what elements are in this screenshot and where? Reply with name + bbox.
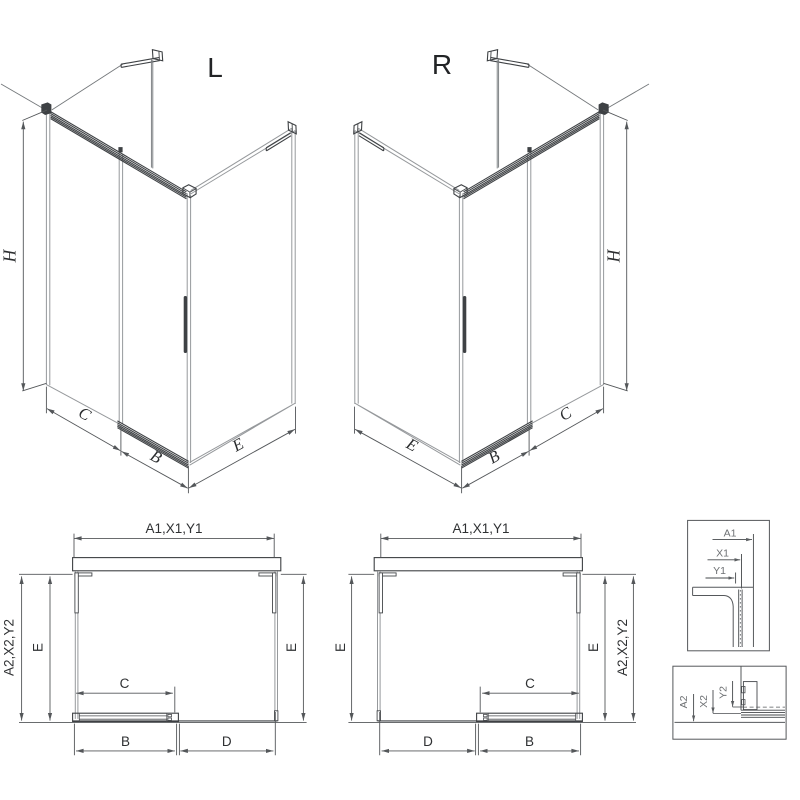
corner-glass-edge <box>187 193 190 463</box>
support-arm <box>52 64 123 110</box>
dim-label-top-width-r: A1,X1,Y1 <box>452 521 509 536</box>
iso-view-right-labels: R H E B C <box>402 49 623 467</box>
door-leading-edge <box>119 153 122 424</box>
side-glass-panels <box>75 571 277 719</box>
dim-label-fixed-r: D <box>423 734 433 749</box>
dim-label-side-r: E <box>402 433 421 455</box>
top-rail-track <box>51 112 187 199</box>
dim-label-height-r: H <box>604 248 624 263</box>
dim-line-side <box>189 429 295 488</box>
plan-view-left-labels: A1,X1,Y1 A2,X2,Y2 E E C B D <box>2 521 300 749</box>
dim-label-fixed-l: D <box>222 734 232 749</box>
dim-label-top-width-l: A1,X1,Y1 <box>145 521 202 536</box>
variant-label-l: L <box>207 52 223 83</box>
wall-angle-profile <box>693 587 754 647</box>
bottom-rail-section <box>741 710 785 717</box>
plan-extension-lines <box>19 534 307 756</box>
detail-label-a1: A1 <box>724 528 737 540</box>
technical-drawing-page: L H C B E R H E B C <box>0 0 800 800</box>
variant-label-r: R <box>432 49 452 80</box>
dim-label-e-left-r: E <box>333 643 348 652</box>
dim-label-outer-depth-l: A2,X2,Y2 <box>2 619 17 676</box>
dim-label-front-fixed-l: C <box>75 403 95 425</box>
wall-hook-bracket <box>152 50 162 61</box>
wall-profiles <box>75 573 278 721</box>
dim-label-front-fixed-r: C <box>556 402 576 424</box>
door-guide-clamp <box>743 682 757 710</box>
detail-label-a2: A2 <box>678 695 690 708</box>
iso-enclosure-geometry <box>1 50 296 494</box>
dim-label-outer-depth-r: A2,X2,Y2 <box>615 619 630 676</box>
detail-label-x1: X1 <box>716 548 729 560</box>
detail-floor-profile: A2 X2 Y2 <box>673 666 786 739</box>
wall-hook-edge <box>159 51 160 60</box>
side-panel-bottom-edge <box>190 403 296 465</box>
support-rod <box>151 60 152 169</box>
iso-enclosure-geometry-mirrored <box>354 50 649 494</box>
detail-label-x2: X2 <box>698 695 710 708</box>
door-guide-block <box>168 714 172 716</box>
detail-wall-profile: A1 X1 Y1 <box>688 520 770 650</box>
dim-label-e-right-r: E <box>586 643 601 652</box>
wall-hatched <box>73 558 281 571</box>
dim-label-side-l: E <box>228 434 247 456</box>
dim-label-door-r: B <box>525 734 534 749</box>
dim-label-e-right-l: E <box>284 643 299 652</box>
door-guide-block <box>168 718 172 720</box>
dim-label-opening-l: C <box>120 676 130 691</box>
side-panel-far-edge <box>292 128 295 404</box>
dim-label-door-l: B <box>147 446 165 468</box>
shower-enclosure-drawing: L H C B E R H E B C <box>0 0 800 800</box>
front-left-glass-edge <box>46 112 49 386</box>
height-extension-lines <box>22 110 47 391</box>
detail-label-y2: Y2 <box>718 686 730 699</box>
dim-label-door-l: B <box>121 734 130 749</box>
detail-label-y1: Y1 <box>713 565 726 577</box>
dim-label-opening-r: C <box>525 676 535 691</box>
plan-view-geometry <box>19 534 307 756</box>
dim-label-door-r: B <box>485 446 503 468</box>
door-handle <box>184 296 187 353</box>
dim-label-e-left-l: E <box>31 643 46 652</box>
door-roller <box>119 148 122 152</box>
wall-stub-line <box>1 84 47 110</box>
dim-label-height-l: H <box>0 248 20 263</box>
side-panel-top-edge <box>191 128 296 194</box>
far-corner-cap <box>42 103 51 115</box>
